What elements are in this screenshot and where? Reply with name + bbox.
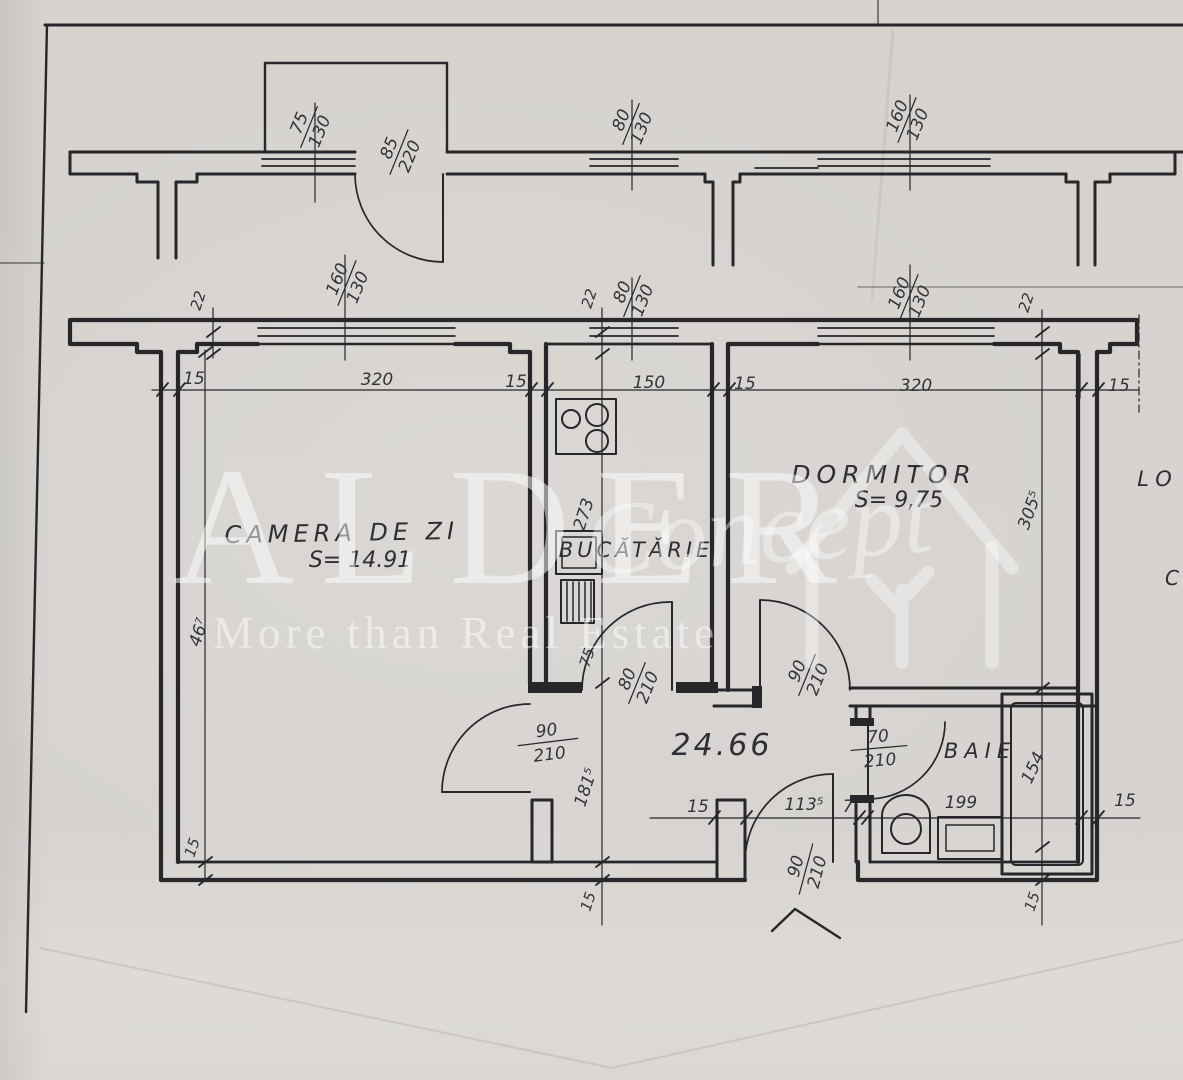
bathtub-basin <box>1011 703 1083 865</box>
dim-tub-length: 154 <box>1018 749 1050 787</box>
upper-wall-bottom <box>70 152 1175 174</box>
frame-left-line <box>26 25 47 1012</box>
upper-pillar-right <box>1066 174 1110 265</box>
dim-wall22-mid: 22 <box>578 287 601 311</box>
fraction-num: 90 <box>535 720 559 742</box>
entrance-pillar <box>717 800 745 880</box>
dim-wall22-west: 22 <box>187 289 210 313</box>
dim-right-wall: 15 <box>1114 791 1136 811</box>
door-label-kitchen: 80 210 <box>610 655 665 712</box>
dim-entry-wall: 7 <box>843 797 854 817</box>
upper-pillar-left <box>137 174 197 258</box>
edge-text-partial: C <box>1165 566 1179 590</box>
edge-text-loggia: LO <box>1137 467 1179 491</box>
watermark-tagline: More than Real Estate <box>213 608 719 658</box>
stove-burner-icon <box>586 404 608 426</box>
balcony-window-lines <box>262 159 355 166</box>
crease-top <box>872 30 893 300</box>
fraction-num: 70 <box>866 726 889 748</box>
balcony-door-arc <box>355 174 443 262</box>
room-label-bath: BAIE <box>944 739 1016 763</box>
south-wall-outer <box>161 862 1097 880</box>
dim-entry-width: 113⁵ <box>784 795 823 815</box>
upper-window-kitchen-lines <box>590 159 678 166</box>
watermark: ALDER Concept More than Real Estate <box>173 434 1012 662</box>
fraction-den: 210 <box>532 743 567 767</box>
living-window-lines <box>258 328 455 336</box>
dim-150-kitchen: 150 <box>633 373 665 393</box>
living-door-arc <box>442 704 530 792</box>
door-label-entrance: 90 210 <box>780 839 834 900</box>
dim-bath-width: 199 <box>945 793 977 813</box>
window-label-balcony: 75 130 <box>282 99 337 156</box>
bedroom-door-jamb <box>752 686 762 708</box>
hall-pillar-left <box>532 800 552 862</box>
kitchen-door-jamb-right <box>676 682 718 693</box>
dim-15-west: 15 <box>183 369 205 389</box>
crease-bottom <box>40 940 1183 1068</box>
bedroom-window-lines <box>818 328 994 336</box>
dim-320-living: 320 <box>361 370 393 390</box>
dim-15-east: 15 <box>1108 376 1130 396</box>
dim-living-depth: 46⁷ <box>185 616 213 649</box>
fraction-den: 210 <box>863 750 897 773</box>
watermark-brand-script: Concept <box>582 459 938 598</box>
entrance-arrow <box>772 909 840 938</box>
balcony-outline <box>265 63 447 152</box>
door-label-bath: 70 210 <box>849 725 909 774</box>
dim-entry-pillar: 15 <box>687 797 709 817</box>
dim-15-kitchenwall: 15 <box>505 372 527 392</box>
dim-living-bottom-wall: 15 <box>181 836 204 860</box>
dim-hall-bottom-wall: 15 <box>577 890 600 914</box>
bath-sink <box>938 817 1002 859</box>
stove-burner-icon <box>562 410 580 428</box>
upper-window-right-lines <box>755 159 990 168</box>
bath-sink-basin <box>946 825 994 851</box>
dim-hall-depth: 181⁵ <box>571 766 602 810</box>
scanned-floorplan-page: CAMERA DE ZI S= 14.91 BUCĂTĂRIE DORMITOR… <box>0 0 1183 1080</box>
dim-extensions-top <box>161 354 1097 398</box>
fraction-num: 90 <box>784 853 809 879</box>
dim-bottom-right-wall: 15 <box>1021 890 1044 914</box>
kitchen-door-jamb-left <box>528 682 582 693</box>
upper-facade-wall <box>70 63 1183 265</box>
door-label-balcony: 85 220 <box>371 122 428 182</box>
hall-area-label: 24.66 <box>672 728 773 763</box>
bath-door-jamb-top <box>850 718 874 726</box>
dim-320-bedroom: 320 <box>900 376 932 396</box>
floorplan-drawing: CAMERA DE ZI S= 14.91 BUCĂTĂRIE DORMITOR… <box>0 0 1183 1080</box>
upper-pillar-mid <box>705 174 740 265</box>
window-label-kitchen: 80 130 <box>605 268 660 325</box>
dim-15-midwall: 15 <box>734 374 756 394</box>
window-label-living: 160 130 <box>319 253 376 313</box>
door-label-living: 90 210 <box>516 718 581 769</box>
dim-wall22-east: 22 <box>1015 291 1038 315</box>
